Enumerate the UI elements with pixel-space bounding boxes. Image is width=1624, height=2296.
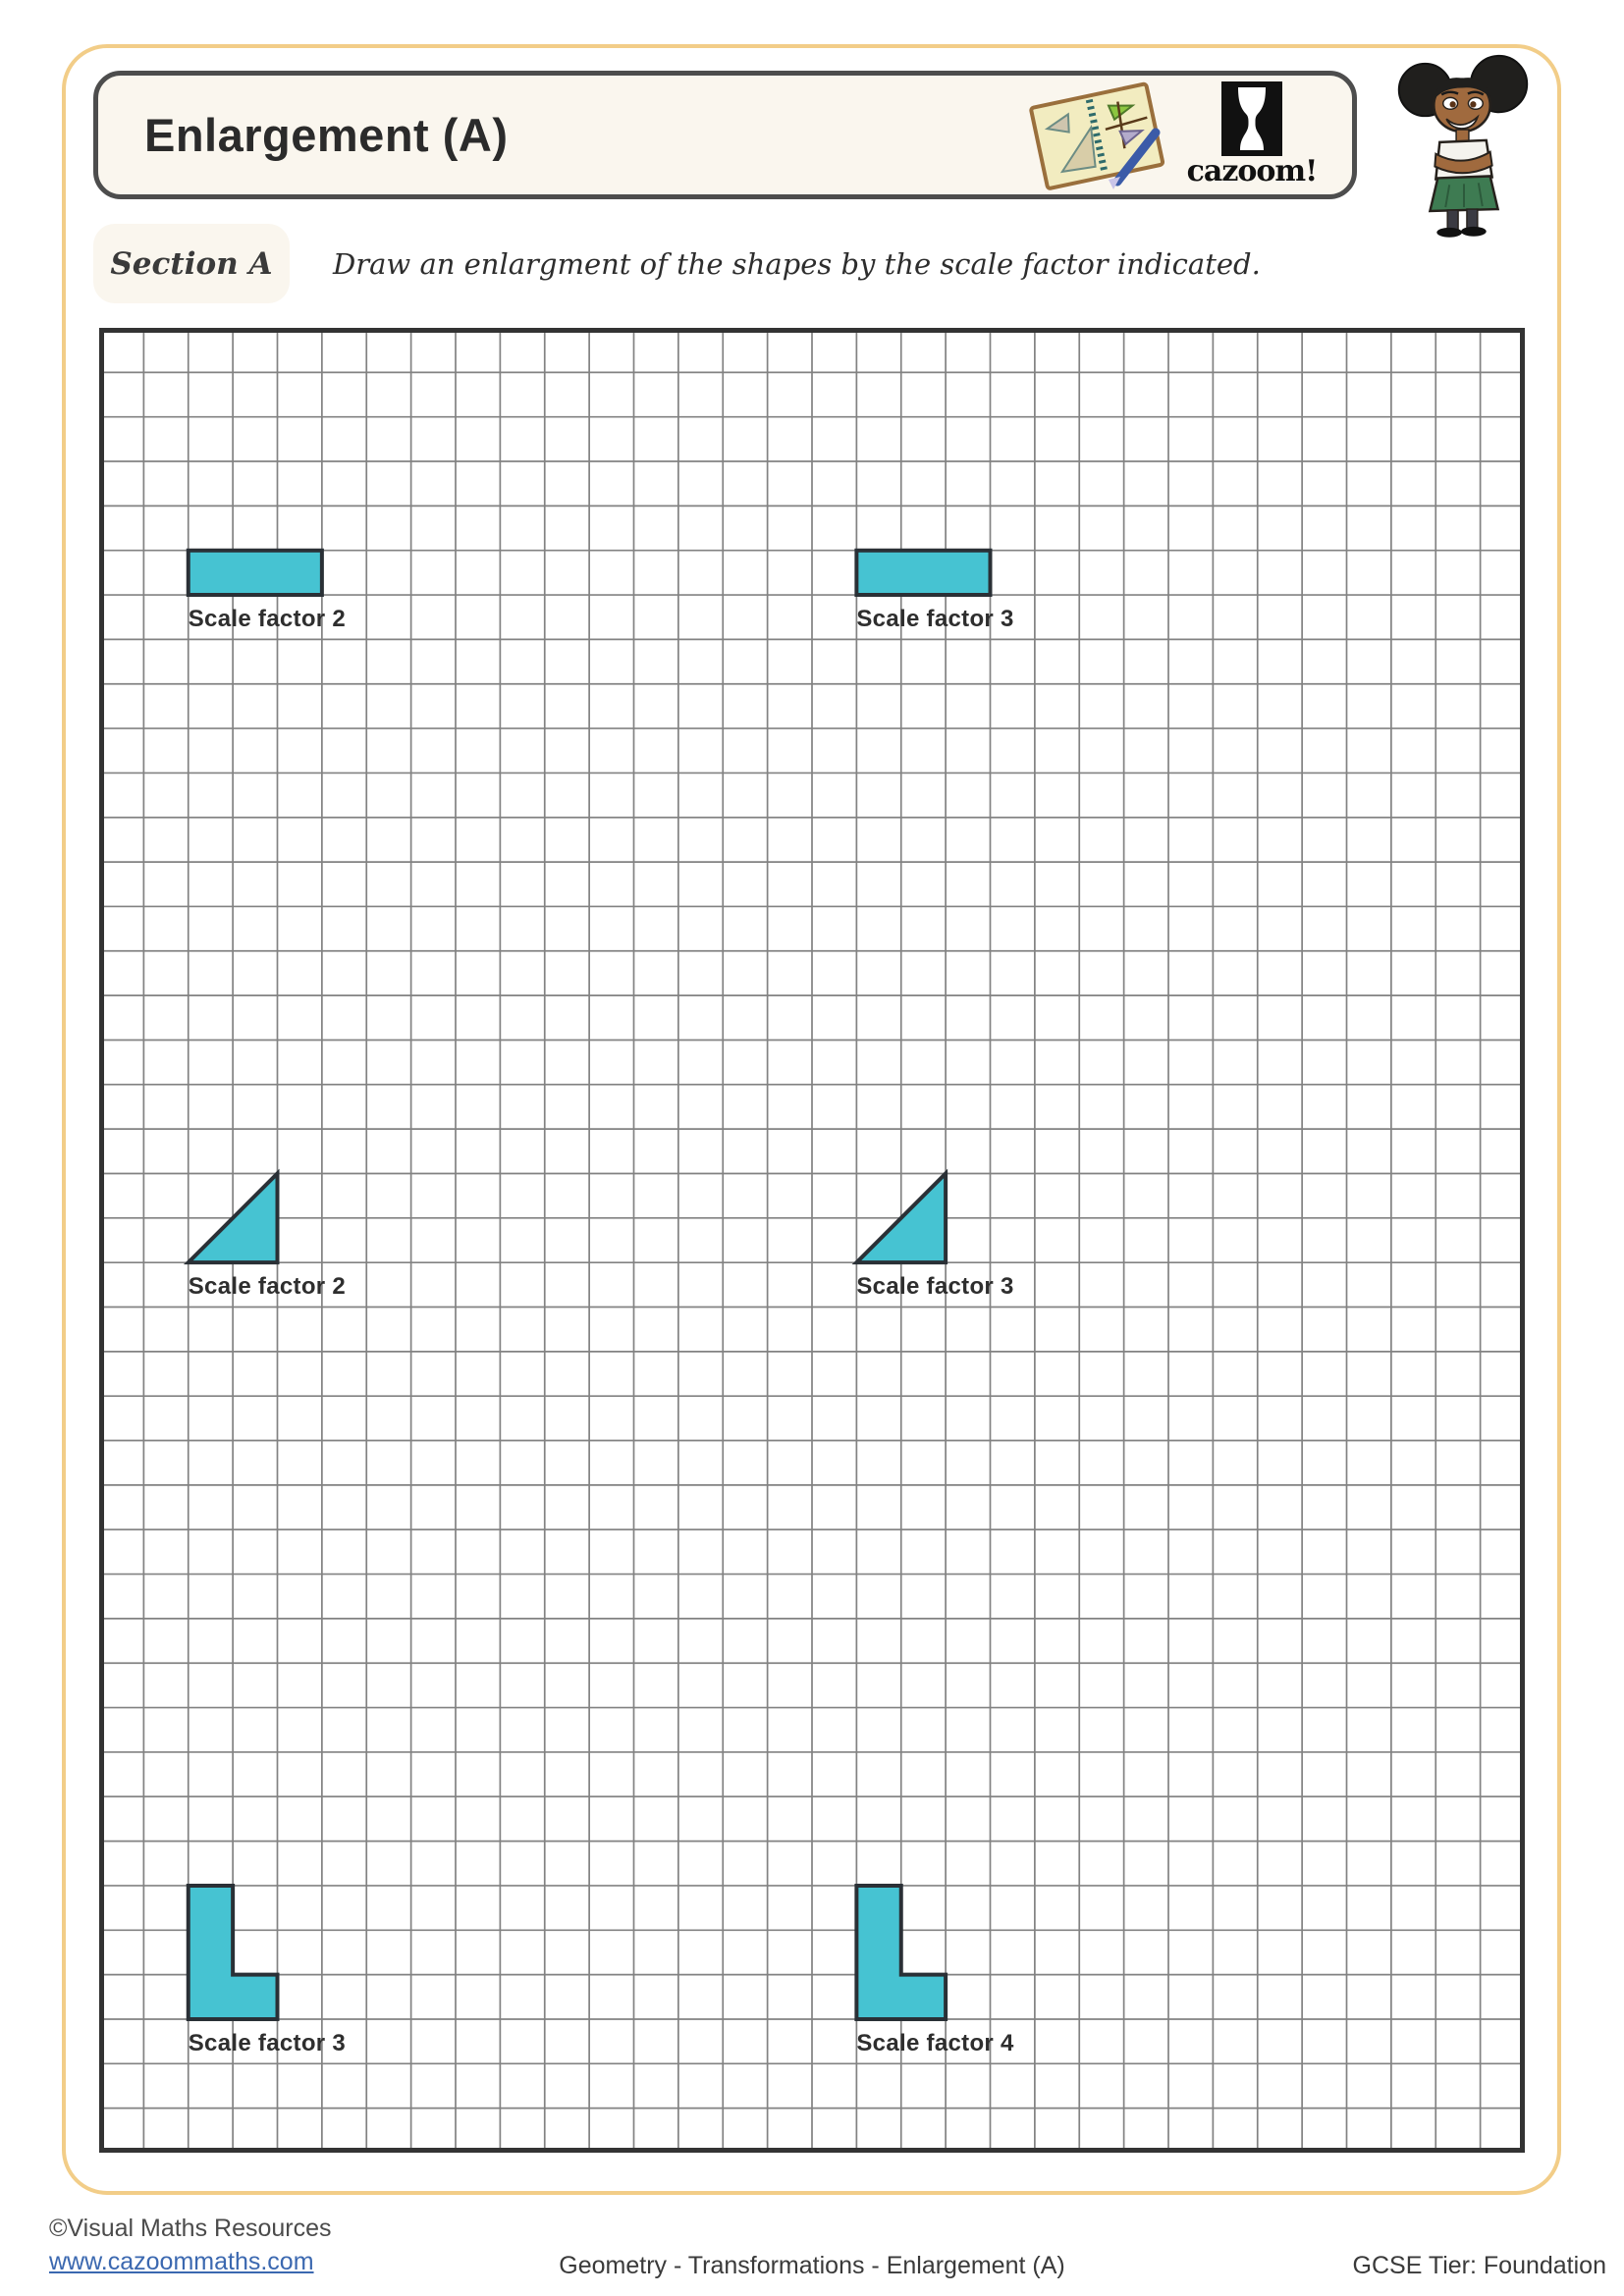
scale-factor-label: Scale factor 3 (856, 606, 1013, 633)
footer-tier: GCSE Tier: Foundation (1353, 2252, 1606, 2280)
rectangle-shape (856, 551, 990, 595)
header: Enlargement (A) (93, 71, 1357, 199)
logo-text: cazoom! (1187, 154, 1318, 188)
instruction-text: Draw an enlargment of the shapes by the … (333, 247, 1261, 281)
l-shape-shape (189, 1886, 278, 2019)
section-label: Section A (110, 246, 272, 282)
worksheet-page: Enlargement (A) (0, 0, 1624, 2296)
l-shape-shape (856, 1886, 946, 2019)
scale-factor-label: Scale factor 2 (189, 606, 346, 633)
djembe-drum-icon (1221, 81, 1282, 156)
header-icons: cazoom! (1018, 76, 1352, 195)
page-title: Enlargement (A) (98, 108, 509, 162)
grid-svg (99, 328, 1525, 2153)
notebook-icon (1018, 76, 1173, 195)
scale-factor-label: Scale factor 2 (189, 1273, 346, 1301)
scale-factor-label: Scale factor 4 (856, 2030, 1013, 2057)
scale-factor-label: Scale factor 3 (856, 1273, 1013, 1301)
worksheet-grid: Scale factor 2Scale factor 3Scale factor… (99, 328, 1525, 2153)
scale-factor-label: Scale factor 3 (189, 2030, 346, 2057)
section-label-box: Section A (93, 224, 290, 303)
cazoom-logo: cazoom! (1191, 81, 1313, 188)
rectangle-shape (189, 551, 322, 595)
student-character-illustration (1381, 49, 1546, 241)
section-row: Section A Draw an enlargment of the shap… (93, 224, 1261, 303)
copyright-text: ©Visual Maths Resources (49, 2215, 332, 2243)
